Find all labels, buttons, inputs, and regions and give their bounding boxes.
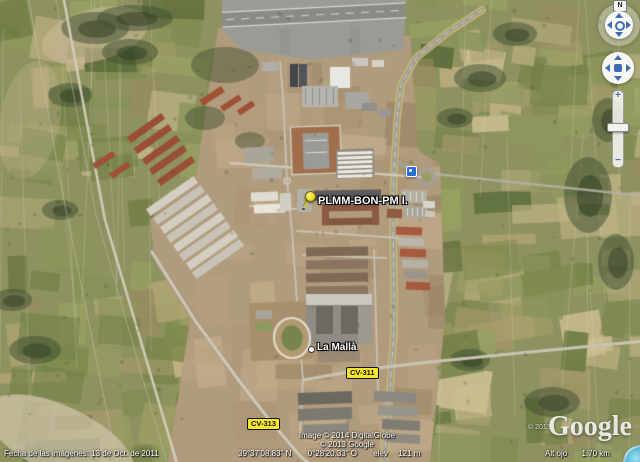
look-up-arrow-icon[interactable] — [615, 13, 623, 18]
map-viewport[interactable]: PLMM-BON-PM I. La Mallà CV-311 CV-313 N … — [0, 0, 640, 462]
latitude-value: 39°37'08.83" N — [238, 449, 291, 458]
eye-alt-value: 1.70 km — [581, 449, 609, 458]
placemark-pin-icon[interactable] — [301, 191, 316, 210]
google-logo: Google — [548, 411, 632, 443]
move-down-arrow-icon[interactable] — [614, 76, 622, 81]
look-eye-icon — [615, 21, 625, 31]
move-left-arrow-icon[interactable] — [605, 64, 610, 72]
look-down-arrow-icon[interactable] — [615, 32, 623, 37]
move-center-icon — [614, 64, 622, 72]
road-shield-cv313: CV-313 — [247, 418, 280, 430]
eye-altitude-readout: Alt ojo 1.70 km — [545, 449, 610, 458]
look-right-arrow-icon[interactable] — [626, 21, 631, 29]
elevation-label: elev — [373, 449, 388, 458]
look-left-arrow-icon[interactable] — [607, 21, 612, 29]
eye-alt-label: Alt ojo — [545, 449, 567, 458]
transit-poi-icon[interactable] — [406, 166, 417, 177]
satellite-imagery[interactable] — [0, 0, 640, 462]
elevation-value: 121 m — [398, 449, 420, 458]
zoom-out-button[interactable]: − — [612, 155, 624, 166]
road-shield-cv311: CV-311 — [346, 367, 379, 379]
copyright-line1: Image © 2014 DigitalGlobe — [257, 431, 437, 440]
move-up-arrow-icon[interactable] — [614, 55, 622, 60]
copyright-block: Image © 2014 DigitalGlobe © 2013 Google — [257, 431, 437, 449]
town-label: La Mallà — [317, 342, 356, 353]
zoom-slider-handle[interactable] — [607, 123, 629, 132]
zoom-in-button[interactable]: + — [612, 90, 624, 101]
coordinates-readout: 39°37'08.83" N 0°28'20.33" O elev 121 m — [238, 449, 420, 458]
imagery-date-label: Fecha de las imágenes: 13 de Oct. de 201… — [4, 449, 159, 458]
pin-tip — [302, 208, 305, 210]
placemark-label[interactable]: PLMM-BON-PM I. — [318, 195, 408, 207]
pin-head — [305, 191, 316, 202]
move-right-arrow-icon[interactable] — [626, 64, 631, 72]
town-marker-dot — [308, 346, 315, 353]
copyright-line2: © 2013 Google — [257, 440, 437, 449]
longitude-value: 0°28'20.33" O — [308, 449, 357, 458]
